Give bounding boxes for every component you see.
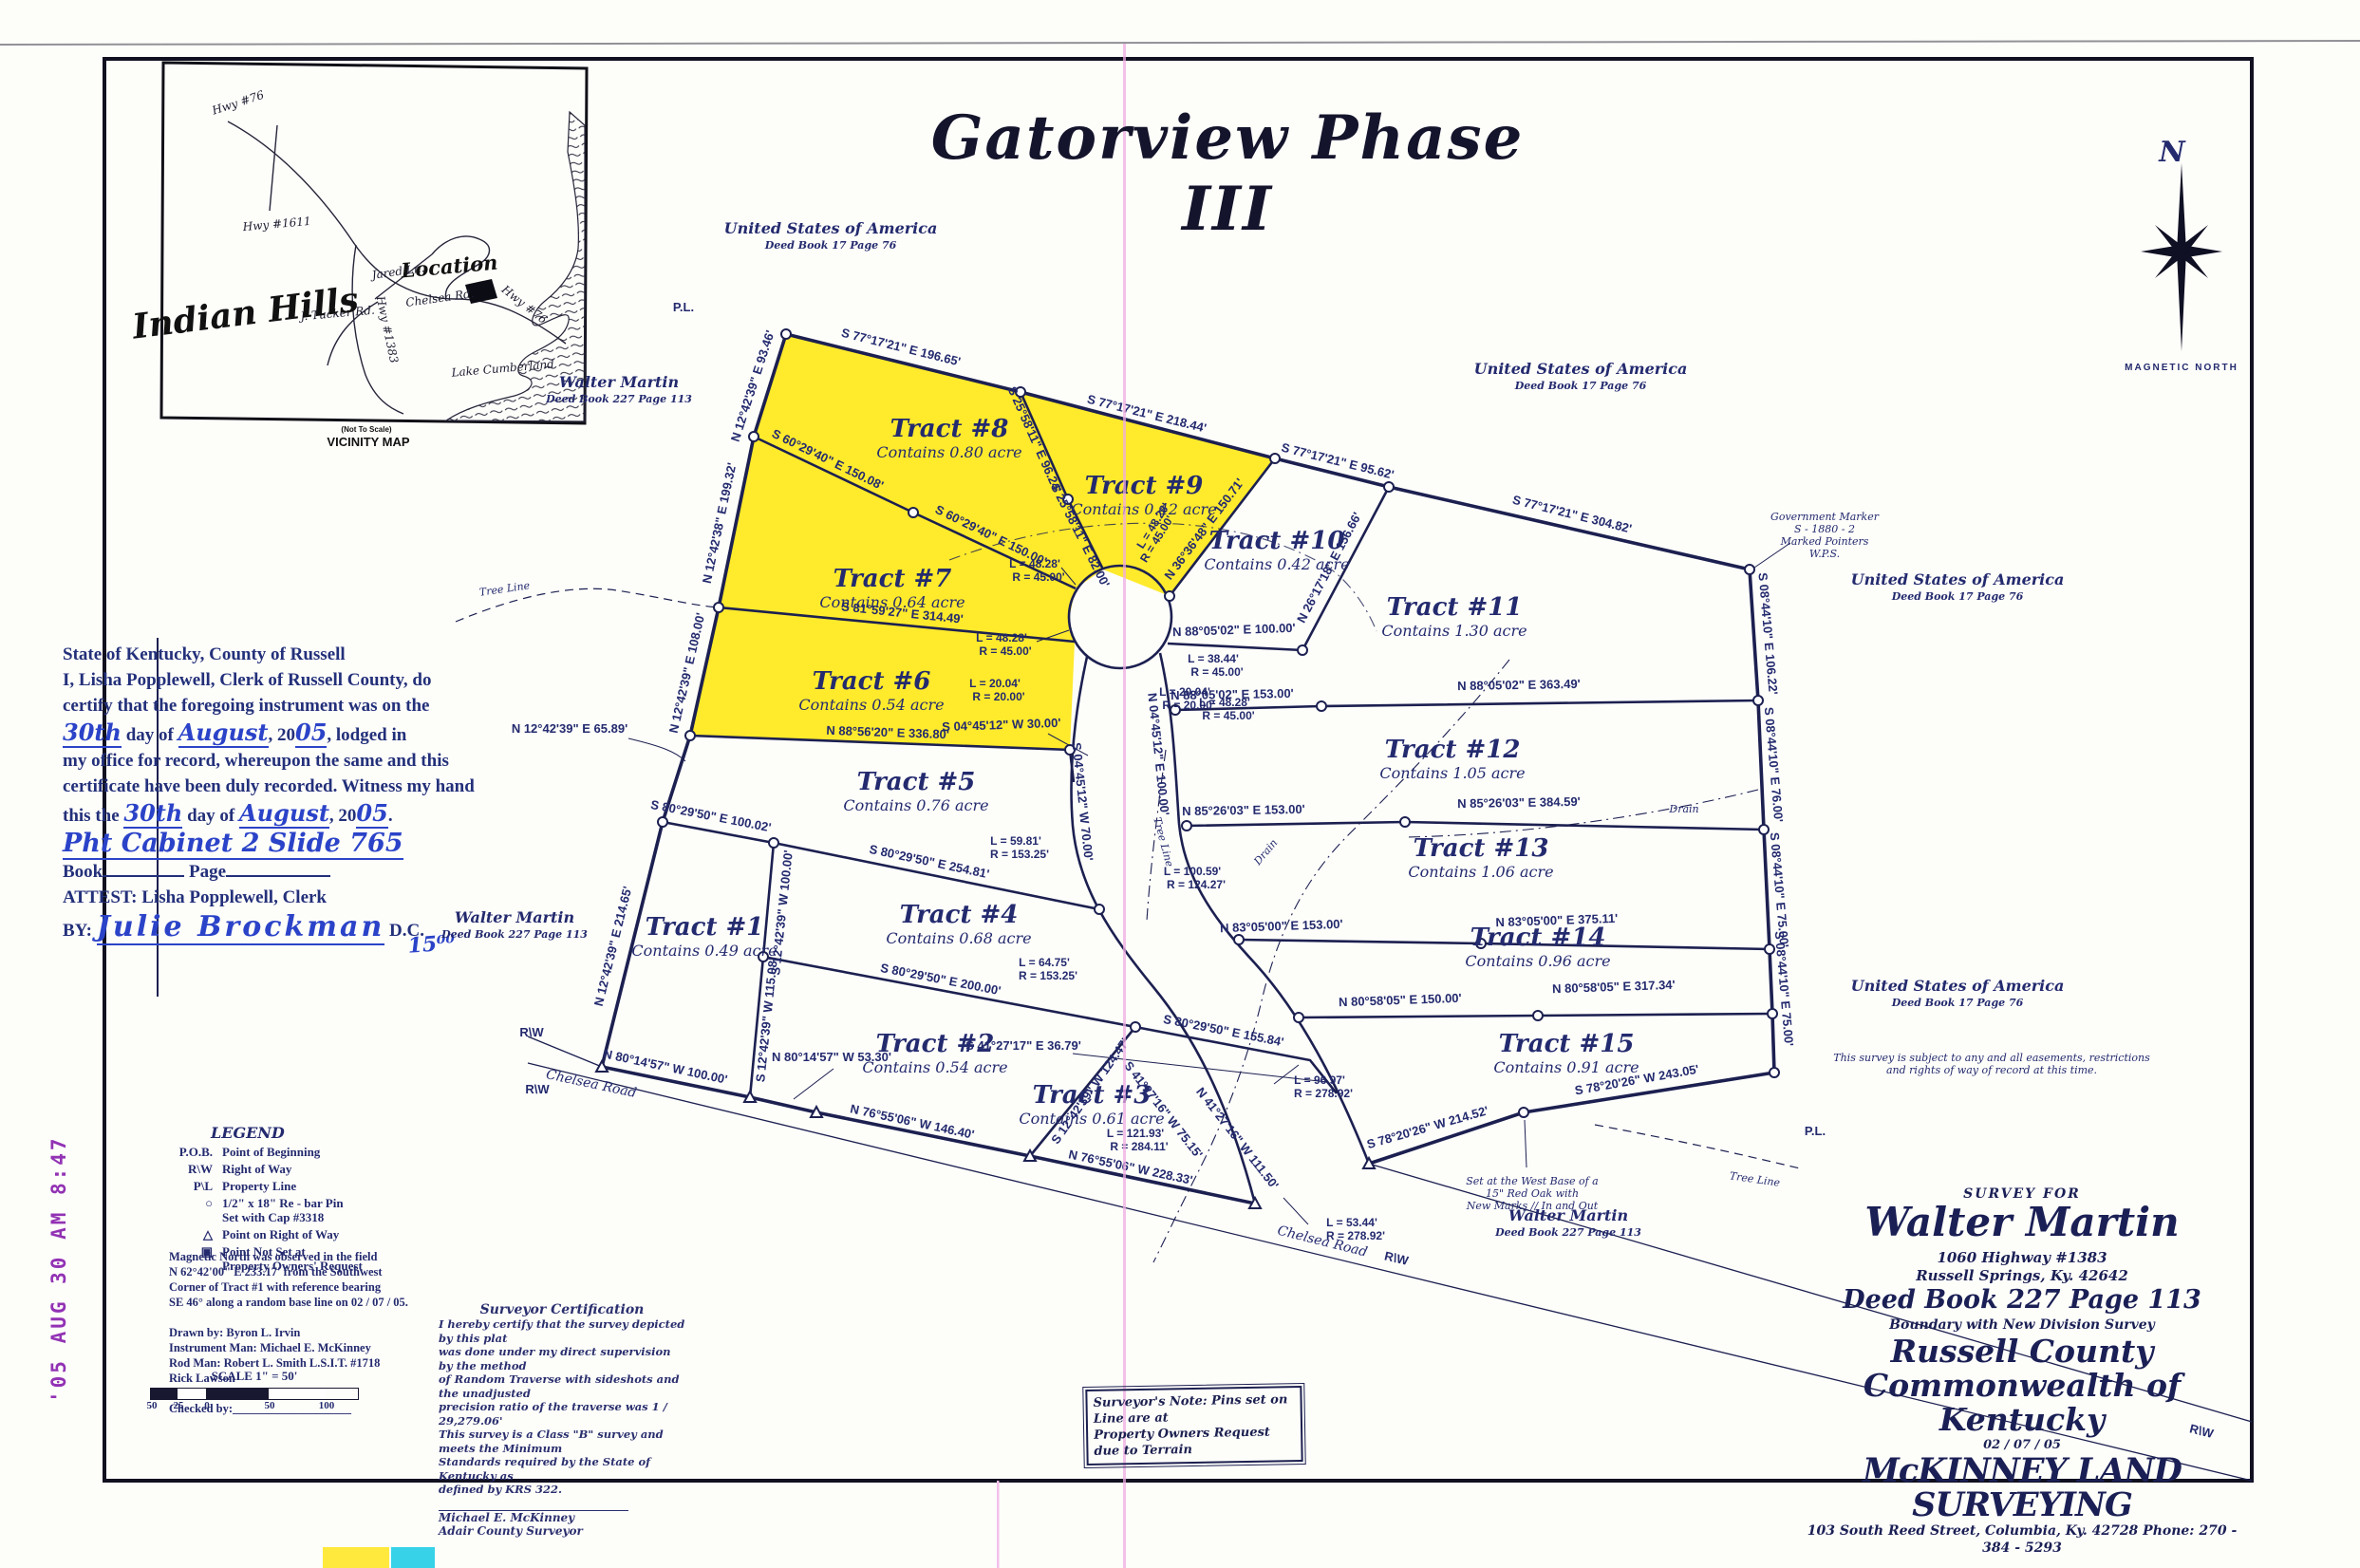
certification-line: precision ratio of the traverse was 1 / … [439, 1400, 685, 1428]
vicinity-label: Location [399, 251, 498, 283]
tract-acreage-label: Contains 1.30 acre [1381, 622, 1527, 640]
adjoining-owner-deed: Deed Book 227 Page 113 [545, 393, 692, 405]
map-note-line: New Marks // In and Out [1466, 1200, 1599, 1212]
tract-name-label: Tract #15 [1499, 1030, 1635, 1058]
curve-length-label: L = 53.44' [1326, 1216, 1377, 1229]
cert-by-line: BY: Julie Brockman D.C. [63, 910, 492, 943]
handwritten-day2: 30th [123, 799, 182, 829]
adjoining-owner-name: Walter Martin [559, 373, 679, 391]
tract-acreage-label: Contains 0.61 acre [1019, 1110, 1164, 1128]
map-text-label: Drain [1251, 837, 1281, 868]
leader-53-30 [794, 1069, 833, 1099]
tract-acreage-label: Contains 0.68 acre [886, 929, 1031, 947]
adjoining-owner-deed: Deed Book 227 Page 113 [1494, 1226, 1641, 1239]
tract-acreage-label: Contains 0.76 acre [843, 796, 988, 814]
rebar-pin [908, 508, 918, 517]
curve-radius-label: R = 45.00' [1190, 665, 1243, 679]
paper-edge-line [0, 41, 2360, 45]
vicinity-label: Chelsea Rd. [405, 287, 476, 309]
rebar-pin [1759, 825, 1769, 834]
legend-symbol: P.O.B. [169, 1145, 222, 1159]
chelsea-road-north-rw-west [528, 1036, 602, 1067]
vicinity-label: VICINITY MAP [327, 435, 409, 449]
legend-symbol: P\L [169, 1179, 222, 1193]
magnetic-north-note: Magnetic North was observed in the field… [169, 1249, 425, 1310]
magnetic-note-line: Magnetic North was observed in the field [169, 1249, 425, 1264]
legend-row: R\WRight of Way [169, 1162, 387, 1176]
tract-name-label: Tract #10 [1209, 527, 1345, 555]
tract-name-label: Tract #14 [1470, 924, 1606, 952]
tract-name-label: Tract #7 [833, 565, 952, 593]
rebar-pin [749, 432, 759, 441]
surveyor-note-box: Surveyor's Note: Pins set on Line are at… [1085, 1386, 1302, 1465]
rebar-pin [1270, 454, 1280, 463]
bearing-label: N 12°42'39" E 214.65' [591, 885, 635, 1007]
rebar-pin [781, 329, 791, 339]
compass-n-label: N [2158, 136, 2186, 169]
map-text-label: R\W [1383, 1248, 1411, 1267]
map-text-label: P.L. [673, 300, 694, 314]
fold-line-artifact-2 [997, 1481, 1000, 1568]
compass-caption: MAGNETIC NORTH [2125, 363, 2238, 373]
north-compass: N MAGNETIC NORTH [2125, 136, 2238, 373]
bearing-label: N 41°27'16" W 111.50' [1193, 1085, 1282, 1192]
curve-length-label: L = 64.75' [1019, 956, 1070, 969]
curve-length-label: L = 121.93' [1107, 1127, 1164, 1140]
rebar-pin [1765, 944, 1774, 954]
rebar-pin [1298, 645, 1307, 655]
rebar-pin [658, 817, 667, 827]
legend-symbol: R\W [169, 1162, 222, 1176]
tract-acreage-label: Contains 1.05 acre [1379, 764, 1525, 782]
curve-length-label: L = 59.81' [990, 834, 1041, 848]
client-address-2: Russell Springs, Ky. 42642 [1797, 1267, 2247, 1285]
magnetic-note-line: SE 46° along a random base line on 02 / … [169, 1295, 425, 1310]
vicinity-label: (Not To Scale) [341, 425, 392, 434]
tract-name-label: Tract #11 [1387, 593, 1523, 622]
tract-name-label: Tract #3 [1033, 1081, 1152, 1110]
bearing-label: S 08°44'10" E 106.22' [1755, 572, 1780, 696]
scale-bar [150, 1388, 359, 1400]
scale-tick-label: 0 [204, 1400, 210, 1411]
vicinity-label: Indian Hills [129, 280, 361, 347]
tract-name-label: Tract #5 [857, 768, 976, 796]
vicinity-label: Hwy #1383 [373, 294, 401, 365]
surveying-firm: McKINNEY LAND SURVEYING [1797, 1454, 2247, 1522]
handwritten-cabinet-slide: Pht Cabinet 2 Slide 765 [63, 829, 403, 860]
adjoining-owner-deed: Deed Book 17 Page 76 [1891, 997, 2024, 1009]
certification-signer-line: Adair County Surveyor [439, 1524, 685, 1538]
bearing-label: S 08°44'10" E 76.00' [1762, 706, 1787, 822]
tract-acreage-label: Contains 0.91 acre [1493, 1058, 1639, 1076]
client-name: Walter Martin [1797, 1202, 2247, 1243]
surveyor-note-line: Property Owners Request due to Terrain [1094, 1424, 1296, 1460]
legend-row: △Point on Right of Way [169, 1227, 387, 1241]
bearing-label: N 83°05'00" E 153.00' [1220, 917, 1343, 936]
bearing-label: S 08°44'10" E 75.00' [1772, 930, 1797, 1046]
surveyor-certification: Surveyor Certification I hereby certify … [439, 1302, 685, 1538]
map-text-label: P.L. [1805, 1124, 1826, 1138]
surveyor-certification-title: Surveyor Certification [439, 1302, 685, 1317]
curve-length-label: L = 96.97' [1294, 1073, 1345, 1087]
legend-text: Property Line [222, 1179, 296, 1193]
bearing-label: S 04°45'12" W 70.00' [1069, 741, 1096, 861]
bearing-label: N 88°05'02" E 363.49' [1457, 677, 1581, 693]
rebar-pin [1234, 935, 1244, 944]
recording-timestamp-stamp: '05 AUG 30 AM 8:47 [47, 1118, 70, 1403]
tract-name-label: Tract #12 [1385, 736, 1521, 764]
scale-tick-label: 50 [265, 1400, 275, 1411]
map-note-line: and rights of way of record at this time… [1886, 1064, 2097, 1076]
bearing-label: N 80°58'05" E 317.34' [1552, 978, 1676, 997]
legend-row: P\LProperty Line [169, 1179, 387, 1193]
legend-text: Right of Way [222, 1162, 291, 1176]
cert-line-date1: 30th day of August, 2005, lodged in [63, 719, 492, 748]
tract-name-label: Tract #4 [900, 901, 1019, 929]
rebar-pin [1294, 1013, 1303, 1022]
magnetic-note-line: Corner of Tract #1 with reference bearin… [169, 1279, 425, 1295]
certification-line: Standards required by the State of Kentu… [439, 1455, 685, 1483]
vicinity-map: Hwy #76Hwy #1611Hwy #1383Jared Ln.Locati… [129, 63, 587, 449]
county-name: Russell County [1797, 1335, 2247, 1369]
map-note-line: Government Marker [1770, 511, 1880, 523]
tract-acreage-label: Contains 0.49 acre [631, 942, 777, 960]
tract-name-label: Tract #2 [876, 1030, 995, 1058]
map-note-line: 15" Red Oak with [1486, 1187, 1579, 1200]
crew-line: Drawn by: Byron L. Irvin [169, 1325, 425, 1340]
survey-type: Boundary with New Division Survey [1797, 1316, 2247, 1335]
tract-acreage-label: Contains 0.42 acre [1071, 500, 1216, 518]
cert-line: I, Lisha Popplewell, Clerk of Russell Co… [63, 667, 492, 693]
tract-name-label: Tract #13 [1414, 834, 1549, 863]
rebar-pin [1317, 701, 1326, 711]
curve-radius-label: R = 45.00' [1012, 570, 1064, 584]
map-note-line: Set at the West Base of a [1466, 1175, 1598, 1187]
rebar-pin [1131, 1022, 1140, 1032]
adjoining-owner-name: United States of America [1851, 977, 2065, 995]
scale-tick-label: 100 [319, 1400, 335, 1411]
handwritten-year: 05 [295, 719, 327, 748]
curve-radius-label: R = 153.25' [990, 848, 1049, 861]
clerk-certificate: State of Kentucky, County of Russell I, … [63, 642, 492, 943]
vicinity-label: Hwy #76 [210, 88, 267, 118]
bearing-label: S 80°29'50" E 100.02' [649, 797, 772, 834]
handwritten-month: August [178, 719, 269, 748]
rebar-pin [1768, 1009, 1777, 1018]
tract-acreage-label: Contains 1.06 acre [1408, 863, 1553, 881]
tract-acreage-label: Contains 0.54 acre [862, 1058, 1007, 1076]
scale-block: SCALE 1" = 50' 5025050100 [150, 1369, 359, 1413]
tract-acreage-label: Contains 0.80 acre [876, 443, 1021, 461]
certification-line: defined by KRS 322. [439, 1483, 685, 1497]
certification-line: This survey is a Class "B" survey and me… [439, 1428, 685, 1455]
rebar-pin [1770, 1068, 1779, 1077]
map-text-label: Drain [1668, 803, 1698, 815]
tract-name-label: Tract #9 [1085, 472, 1204, 500]
certification-line: of Random Traverse with sideshots and th… [439, 1372, 685, 1400]
legend-row: ○1/2" x 18" Re - bar PinSet with Cap #33… [169, 1196, 387, 1224]
curve-radius-label: R = 20.00' [972, 690, 1024, 703]
client-address-1: 1060 Highway #1383 [1797, 1249, 2247, 1267]
handwritten-year2: 05 [356, 799, 387, 829]
cert-line: my office for record, whereupon the same… [63, 748, 492, 774]
curve-radius-label: R = 153.25' [1019, 969, 1077, 982]
curve-leader-4 [1283, 1198, 1308, 1224]
surveyor-note-line: Surveyor's Note: Pins set on Line are at [1093, 1391, 1295, 1428]
leader-65-89 [628, 738, 685, 761]
curve-radius-label: R = 45.00' [979, 644, 1031, 658]
tract-acreage-label: Contains 0.64 acre [819, 593, 965, 611]
vicinity-label: Hwy #1611 [241, 215, 311, 233]
rebar-pin [1182, 821, 1191, 831]
rebar-pin [769, 838, 778, 848]
map-text-label: Tree Line [1729, 1169, 1781, 1188]
adjoining-owner-deed: Deed Book 17 Page 76 [1514, 380, 1647, 392]
deed-reference: Deed Book 227 Page 113 [1797, 1285, 2247, 1316]
rebar-pin [685, 731, 695, 740]
vicinity-road-hwy1611 [270, 125, 277, 211]
adjoining-owner-name: United States of America [1474, 360, 1688, 378]
rebar-pin [1400, 817, 1410, 827]
curve-radius-label: R = 20.00' [1162, 699, 1214, 712]
page-title: Gatorview Phase III [876, 103, 1579, 245]
curve-length-label: L = 48.28' [976, 631, 1027, 644]
red-oak-leader [1525, 1120, 1527, 1167]
divider-t11-t12 [1175, 700, 1758, 710]
rebar-pin [1384, 482, 1394, 492]
map-text-label: Tree Line [478, 579, 531, 598]
scale-tick-label: 50 [147, 1400, 158, 1411]
magnetic-note-line: N 62°42'00" E 233.17' from the Southwest [169, 1264, 425, 1279]
fold-line-artifact [1123, 44, 1126, 1568]
tract-name-label: Tract #1 [646, 913, 764, 942]
map-note-line: W.P.S. [1809, 548, 1840, 560]
bearing-label: S 80°29'50" E 200.00' [879, 961, 1002, 998]
rebar-pin [1165, 591, 1174, 601]
divider-t12-t13 [1187, 822, 1764, 830]
cert-line: certify that the foregoing instrument wa… [63, 693, 492, 719]
map-text-label: R\W [519, 1025, 544, 1039]
map-note-line: This survey is subject to any and all ea… [1833, 1052, 2150, 1064]
rebar-pin [1745, 565, 1754, 574]
legend-text: Point of Beginning [222, 1145, 320, 1159]
survey-plat-page: Hwy #76Hwy #1611Hwy #1383Jared Ln.Locati… [0, 0, 2360, 1568]
tract-acreage-label: Contains 0.54 acre [798, 696, 944, 714]
adjoining-owner-name: United States of America [1851, 570, 2065, 588]
curve-radius-label: R = 284.11' [1110, 1140, 1168, 1153]
tract-name-label: Tract #6 [813, 667, 931, 696]
bearing-label: N 85°26'03" E 153.00' [1182, 802, 1305, 818]
cert-attest: ATTEST: Lisha Popplewell, Clerk [63, 885, 492, 910]
scale-title: SCALE 1" = 50' [150, 1369, 359, 1384]
cert-book-page: Book Page [63, 859, 492, 885]
divider-t10-south [1168, 644, 1302, 650]
bearing-label: N 80°58'05" E 150.00' [1339, 991, 1462, 1010]
rebar-pin [1095, 905, 1104, 914]
tract-acreage-label: Contains 0.42 acre [1204, 555, 1349, 573]
scan-artifact-yellow [323, 1547, 389, 1568]
title-block: SURVEY FOR Walter Martin 1060 Highway #1… [1797, 1186, 2247, 1557]
legend-title: LEGEND [211, 1124, 387, 1142]
cul-de-sac [1069, 566, 1171, 668]
curve-radius-label: R = 124.27' [1167, 878, 1226, 891]
tree-line-southeast [1595, 1125, 1804, 1169]
curve-length-label: L = 38.44' [1188, 652, 1239, 665]
scale-labels: 5025050100 [150, 1400, 359, 1413]
curve-length-label: L = 20.04' [1159, 685, 1210, 699]
curve-length-label: L = 100.59' [1164, 865, 1221, 878]
cert-line: certificate have been duly recorded. Wit… [63, 774, 492, 799]
curve-length-label: L = 48.28' [1009, 557, 1060, 570]
legend-symbol: △ [169, 1227, 222, 1241]
map-note-line: S - 1880 - 2 [1794, 523, 1855, 535]
map-note-line: Marked Pointers [1780, 535, 1869, 548]
scale-tick-label: 25 [174, 1400, 184, 1411]
handwritten-day: 30th [63, 719, 122, 748]
state-name: Commonwealth of Kentucky [1797, 1369, 2247, 1437]
deputy-signature: Julie Brockman [97, 910, 385, 945]
certification-line: I hereby certify that the survey depicte… [439, 1317, 685, 1345]
legend-text: Point on Right of Way [222, 1227, 339, 1241]
curve-radius-label: R = 278.92' [1294, 1087, 1353, 1100]
adjoining-owner-deed: Deed Book 17 Page 76 [1891, 590, 2024, 603]
map-text-label: R\W [525, 1082, 550, 1096]
rebar-pin [1519, 1108, 1528, 1117]
bearing-label: N 88°05'02" E 100.00' [1172, 621, 1296, 640]
legend-text: 1/2" x 18" Re - bar PinSet with Cap #331… [222, 1196, 344, 1224]
tract-name-label: Tract #8 [890, 415, 1009, 443]
crew-line: Instrument Man: Michael E. McKinney [169, 1340, 425, 1355]
certification-line: was done under my direct supervision by … [439, 1345, 685, 1372]
curve-length-label: L = 20.04' [969, 677, 1021, 690]
cert-line: State of Kentucky, County of Russell [63, 642, 492, 667]
firm-address: 103 South Reed Street, Columbia, Ky. 427… [1797, 1522, 2247, 1557]
bearing-label: N 12°42'39" E 65.89' [512, 721, 627, 736]
rebar-pin [714, 603, 723, 612]
bearing-label: N 85°26'03" E 384.59' [1457, 794, 1581, 811]
certification-signer-line: Michael E. McKinney [439, 1511, 685, 1524]
legend-row: P.O.B.Point of Beginning [169, 1145, 387, 1159]
scan-artifact-cyan [391, 1547, 435, 1568]
cert-line-date2: this the 30th day of August, 2005. [63, 799, 492, 829]
rebar-pin [1533, 1011, 1543, 1020]
handwritten-month2: August [239, 799, 329, 829]
tract-acreage-label: Contains 0.96 acre [1465, 952, 1610, 970]
rebar-pin [1753, 696, 1763, 705]
legend-symbol: ○ [169, 1196, 222, 1224]
